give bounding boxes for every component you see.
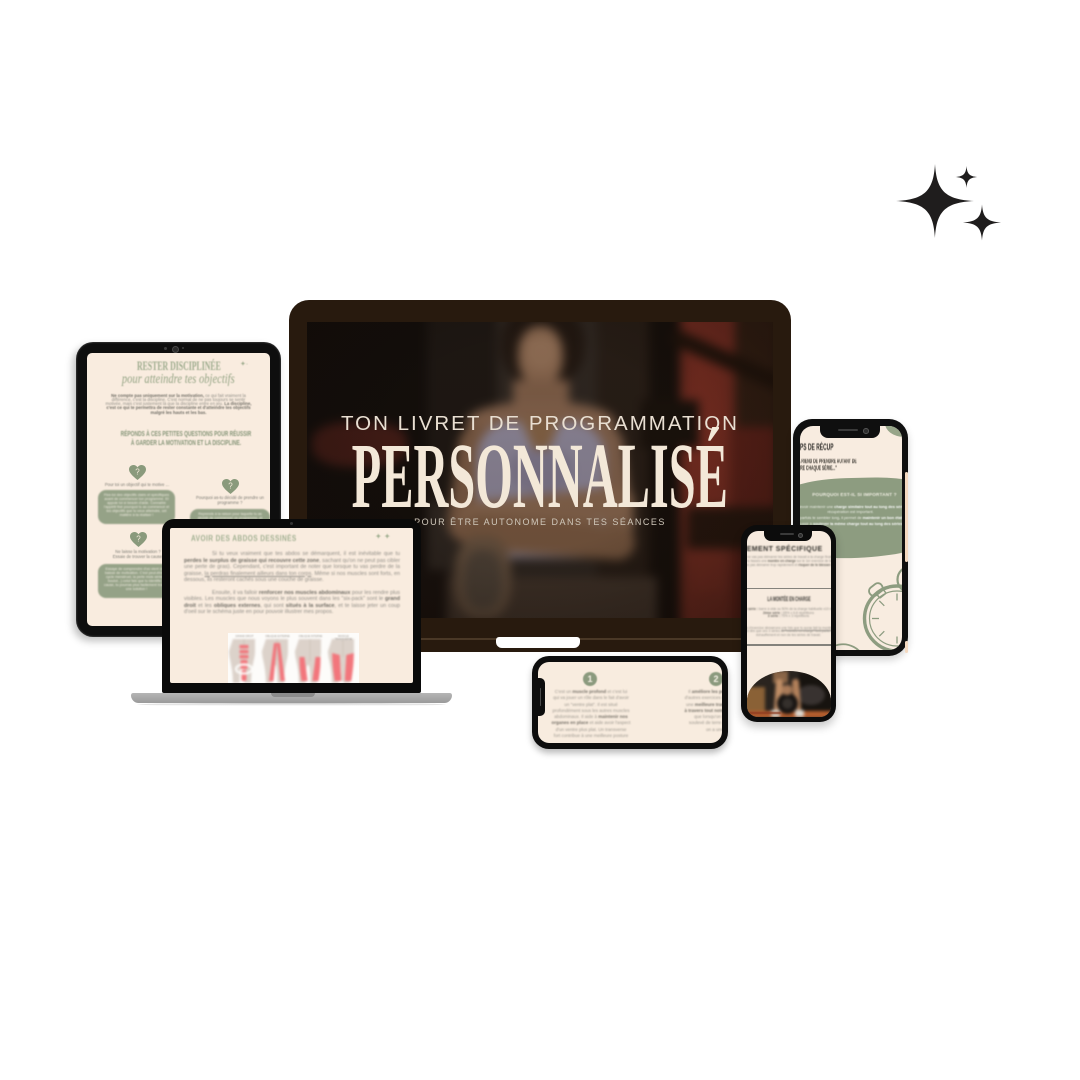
svg-text:?: ? (136, 535, 141, 544)
svg-text:?: ? (228, 482, 233, 491)
svg-text:?: ? (135, 468, 140, 477)
